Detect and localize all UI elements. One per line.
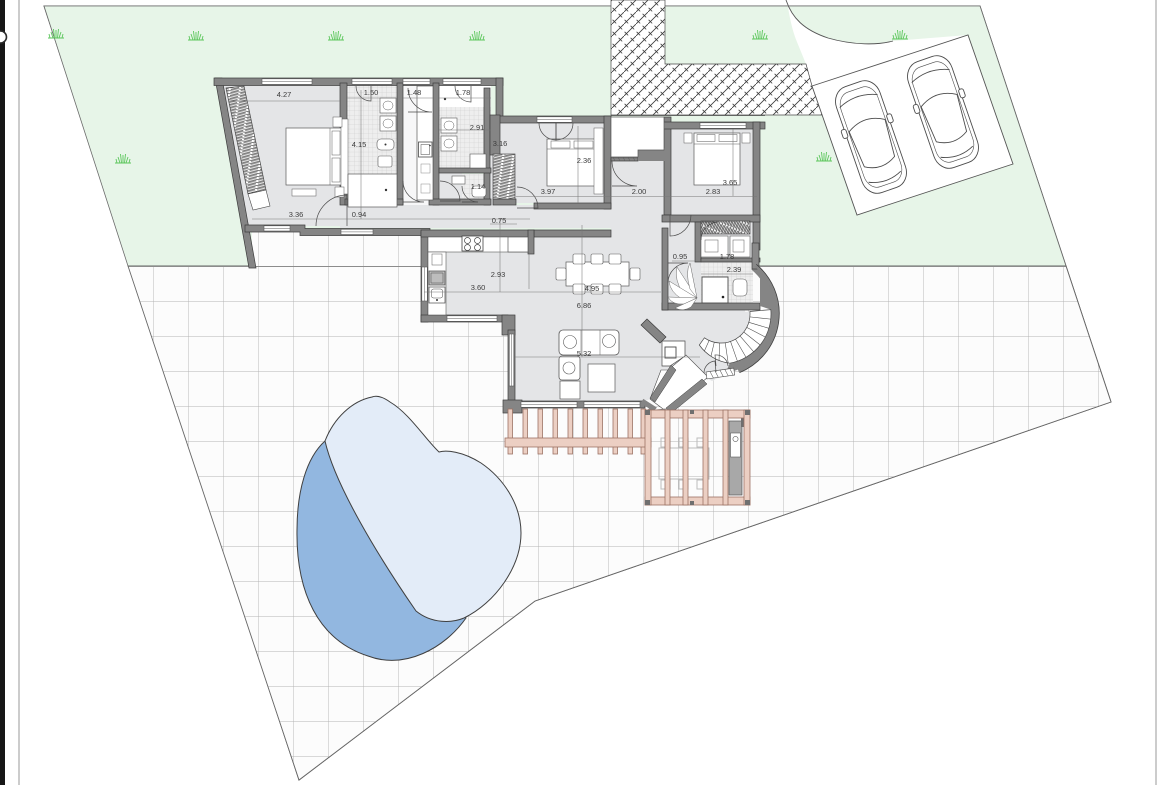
svg-text:2.39: 2.39 bbox=[727, 265, 742, 274]
svg-text:0.94: 0.94 bbox=[352, 210, 367, 219]
svg-text:3.36: 3.36 bbox=[289, 210, 304, 219]
svg-text:3.16: 3.16 bbox=[493, 139, 508, 148]
svg-text:4.27: 4.27 bbox=[277, 90, 292, 99]
svg-text:5.32: 5.32 bbox=[577, 349, 592, 358]
svg-text:4.15: 4.15 bbox=[352, 140, 367, 149]
svg-text:2.93: 2.93 bbox=[491, 270, 506, 279]
svg-text:3.60: 3.60 bbox=[471, 283, 486, 292]
svg-text:1.50: 1.50 bbox=[364, 88, 379, 97]
svg-text:1.14: 1.14 bbox=[471, 182, 486, 191]
svg-text:3.97: 3.97 bbox=[541, 187, 556, 196]
svg-text:2.91: 2.91 bbox=[470, 123, 485, 132]
svg-text:1.78: 1.78 bbox=[720, 252, 735, 261]
svg-text:4.95: 4.95 bbox=[585, 284, 600, 293]
svg-text:0.75: 0.75 bbox=[492, 216, 507, 225]
svg-text:3.65: 3.65 bbox=[723, 178, 738, 187]
svg-text:2.83: 2.83 bbox=[706, 187, 721, 196]
svg-text:2.36: 2.36 bbox=[577, 156, 592, 165]
svg-text:1.78: 1.78 bbox=[456, 88, 471, 97]
svg-text:6.86: 6.86 bbox=[577, 301, 592, 310]
svg-text:0.95: 0.95 bbox=[673, 252, 688, 261]
svg-text:1.48: 1.48 bbox=[407, 88, 422, 97]
svg-text:2.00: 2.00 bbox=[632, 187, 647, 196]
